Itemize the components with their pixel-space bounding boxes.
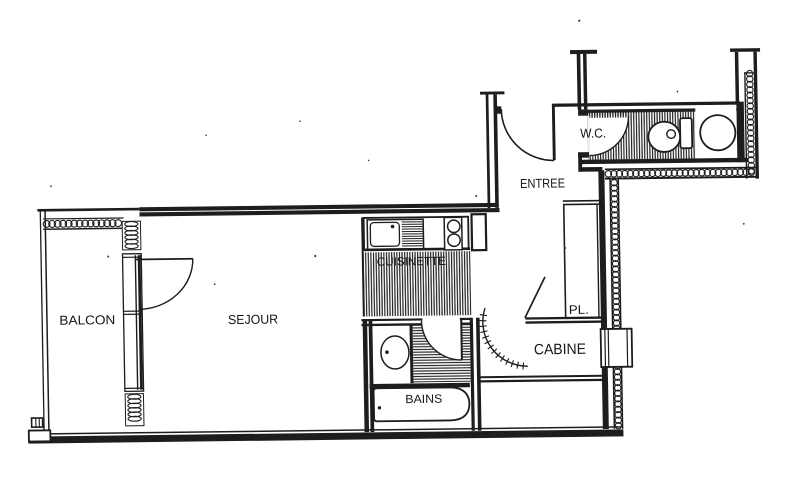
svg-text:ENTREE: ENTREE bbox=[520, 175, 566, 191]
svg-text:BAINS: BAINS bbox=[405, 392, 442, 406]
svg-text:W.C.: W.C. bbox=[580, 125, 606, 140]
svg-text:PL.: PL. bbox=[569, 303, 589, 317]
svg-text:CUISINETTE: CUISINETTE bbox=[377, 254, 446, 269]
svg-text:CABINE: CABINE bbox=[534, 341, 586, 359]
svg-text:SEJOUR: SEJOUR bbox=[228, 312, 278, 328]
svg-text:BALCON: BALCON bbox=[59, 312, 115, 328]
